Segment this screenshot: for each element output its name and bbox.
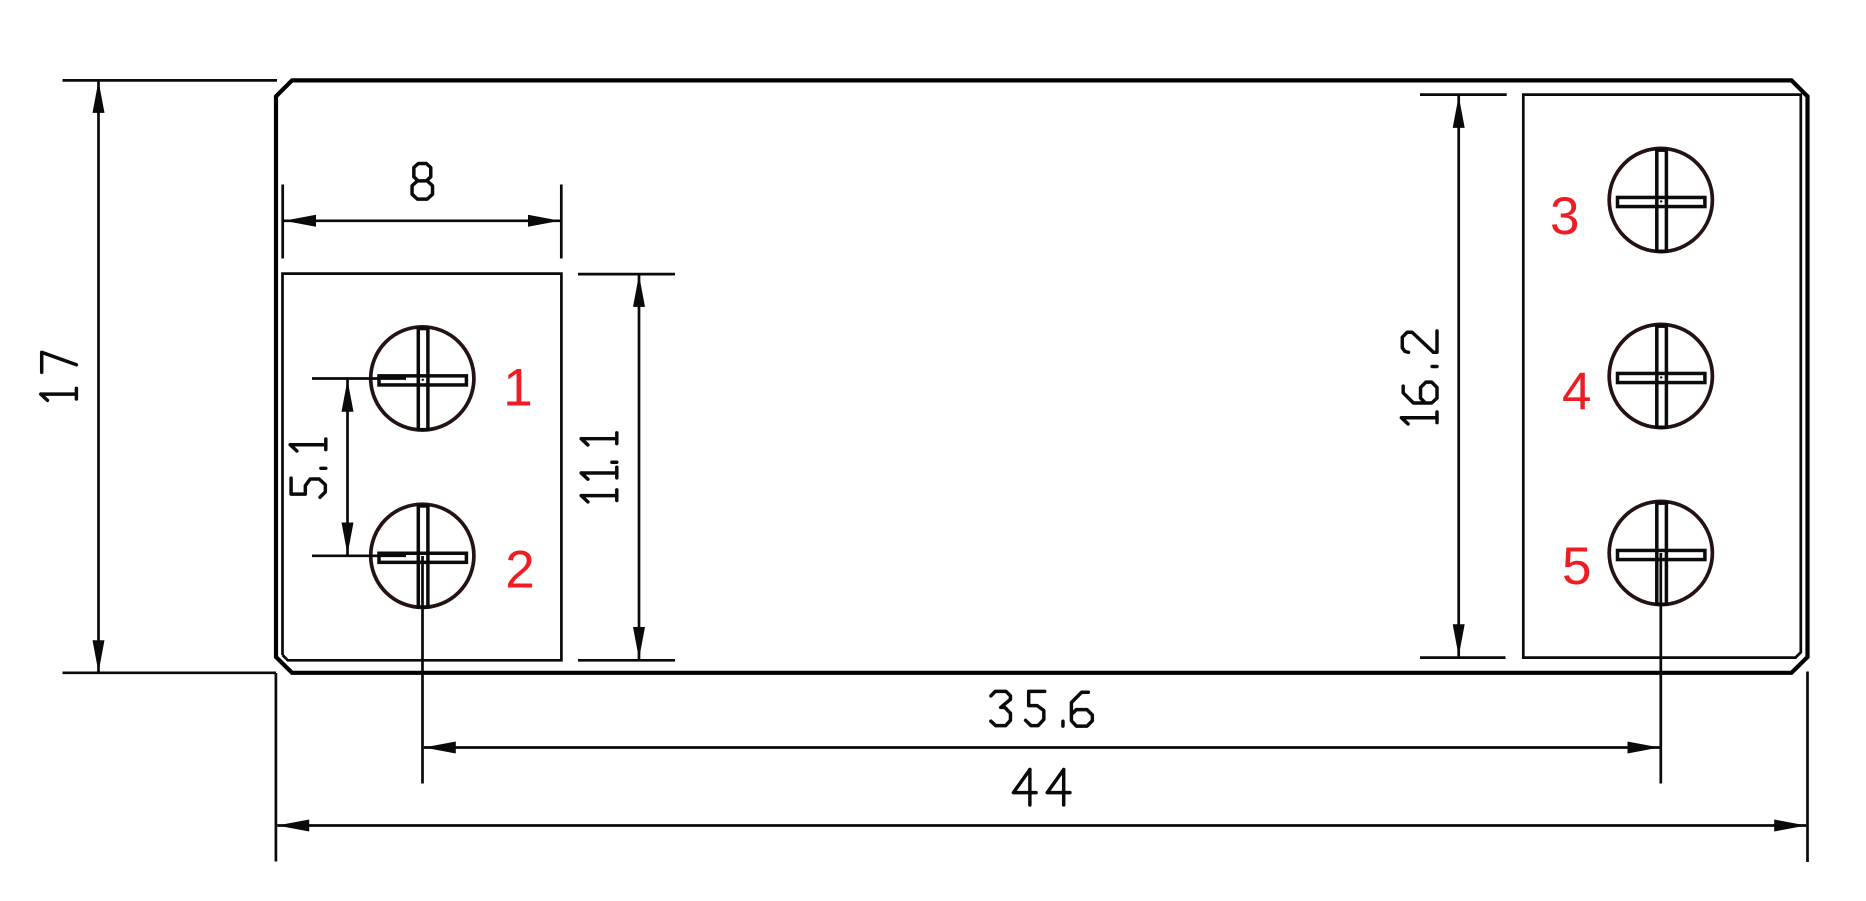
svg-text:4: 4 <box>1562 362 1591 421</box>
svg-text:2: 2 <box>505 541 534 600</box>
svg-text:5: 5 <box>1562 537 1591 596</box>
svg-text:1: 1 <box>503 358 532 417</box>
svg-text:3: 3 <box>1550 187 1579 246</box>
